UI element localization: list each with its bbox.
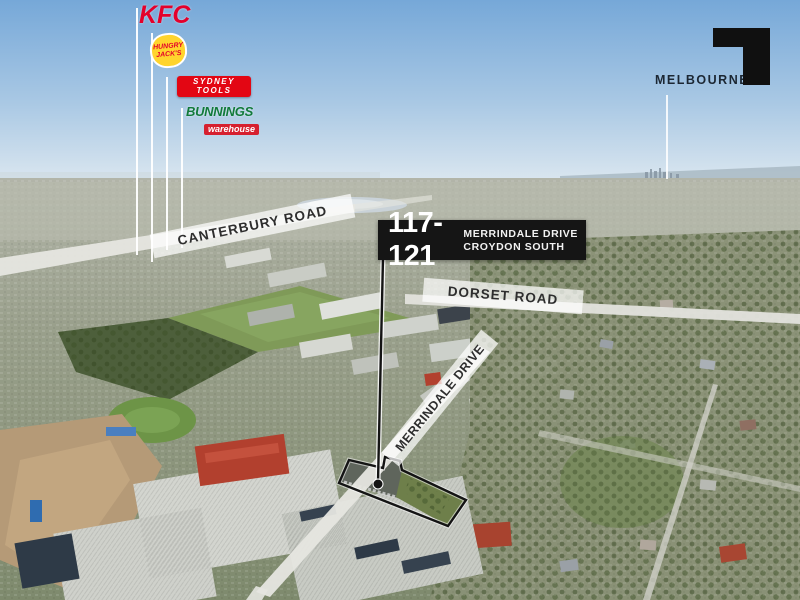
bunnings-logo: BUNNINGS warehouse bbox=[186, 104, 262, 137]
address-badge: 117-121 MERRINDALE DRIVE CROYDON SOUTH bbox=[378, 220, 586, 260]
corner-mark-icon bbox=[743, 28, 770, 85]
hungry-jacks-line2: JACK'S bbox=[156, 49, 182, 59]
leader-line-sydney-tools bbox=[166, 77, 168, 250]
aerial-photo-stage: KFC HUNGRY JACK'S SYDNEY TOOLS BUNNINGS … bbox=[0, 0, 800, 600]
leader-line-melbourne bbox=[666, 95, 668, 179]
bunnings-brand-text: BUNNINGS bbox=[186, 104, 262, 119]
sky bbox=[0, 0, 800, 186]
bunnings-warehouse-text: warehouse bbox=[204, 124, 259, 135]
leader-line-kfc bbox=[136, 8, 138, 255]
address-street: MERRINDALE DRIVE bbox=[463, 228, 578, 241]
aerial-photo bbox=[0, 0, 800, 600]
sydney-tools-line2: TOOLS bbox=[197, 87, 232, 96]
address-number: 117-121 bbox=[388, 207, 455, 273]
kfc-logo: KFC bbox=[139, 1, 190, 30]
address-suburb: CROYDON SOUTH bbox=[463, 241, 578, 254]
leader-line-hungry-jacks bbox=[151, 33, 153, 262]
sydney-tools-logo: SYDNEY TOOLS bbox=[177, 76, 251, 97]
